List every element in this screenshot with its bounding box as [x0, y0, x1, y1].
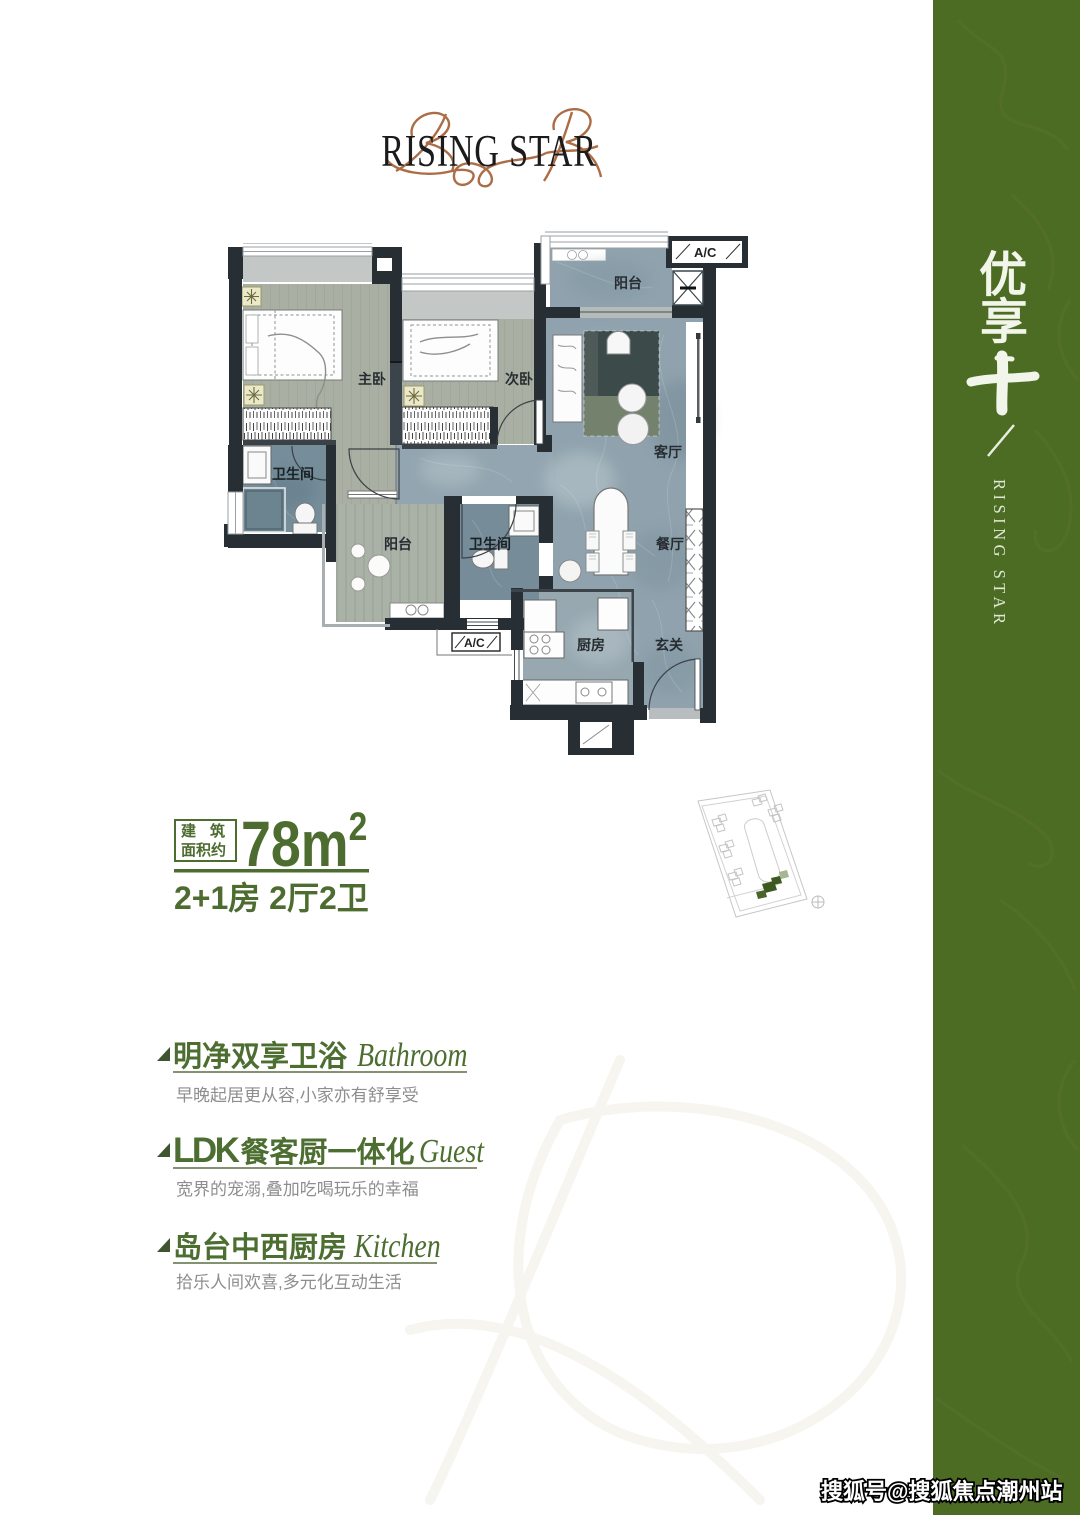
- svg-text:享: 享: [980, 296, 1028, 349]
- svg-text:卫生间: 卫生间: [272, 466, 314, 482]
- svg-text:拾乐人间欢喜,多元化互动生活: 拾乐人间欢喜,多元化互动生活: [176, 1273, 402, 1292]
- svg-text:Bathroom: Bathroom: [357, 1035, 467, 1073]
- svg-text:A/C: A/C: [694, 245, 717, 260]
- svg-text:阳台: 阳台: [614, 275, 642, 291]
- svg-text:主卧: 主卧: [358, 371, 386, 387]
- svg-text:优: 优: [979, 249, 1027, 302]
- svg-text:卫生间: 卫生间: [469, 536, 511, 552]
- svg-text:餐厅: 餐厅: [655, 536, 684, 552]
- svg-text:Kitchen: Kitchen: [353, 1226, 441, 1264]
- svg-text:2+1房 2厅2卫: 2+1房 2厅2卫: [174, 880, 369, 916]
- svg-text:宽界的宠溺,叠加吃喝玩乐的幸福: 宽界的宠溺,叠加吃喝玩乐的幸福: [176, 1180, 419, 1199]
- svg-text:LDK餐客厨一体化: LDK餐客厨一体化: [173, 1131, 414, 1170]
- svg-text:RISING STAR: RISING STAR: [990, 479, 1009, 628]
- svg-text:厨房: 厨房: [577, 637, 605, 653]
- svg-text:搜狐号@搜狐焦点潮州站: 搜狐号@搜狐焦点潮州站: [821, 1479, 1062, 1504]
- svg-text:明净双享卫浴: 明净双享卫浴: [173, 1039, 348, 1073]
- svg-text:阳台: 阳台: [384, 536, 412, 552]
- svg-text:面积约: 面积约: [181, 841, 226, 859]
- svg-text:早晚起居更从容,小家亦有舒享受: 早晚起居更从容,小家亦有舒享受: [176, 1086, 419, 1105]
- svg-text:岛台中西厨房: 岛台中西厨房: [173, 1230, 347, 1264]
- svg-text:次卧: 次卧: [505, 371, 533, 387]
- svg-text:玄关: 玄关: [655, 637, 683, 653]
- svg-text:78m2: 78m2: [241, 804, 367, 880]
- svg-text:客厅: 客厅: [653, 444, 682, 460]
- svg-text:A/C: A/C: [464, 636, 485, 650]
- svg-text:Guest: Guest: [419, 1131, 485, 1169]
- svg-text:RISING STAR: RISING STAR: [381, 125, 597, 176]
